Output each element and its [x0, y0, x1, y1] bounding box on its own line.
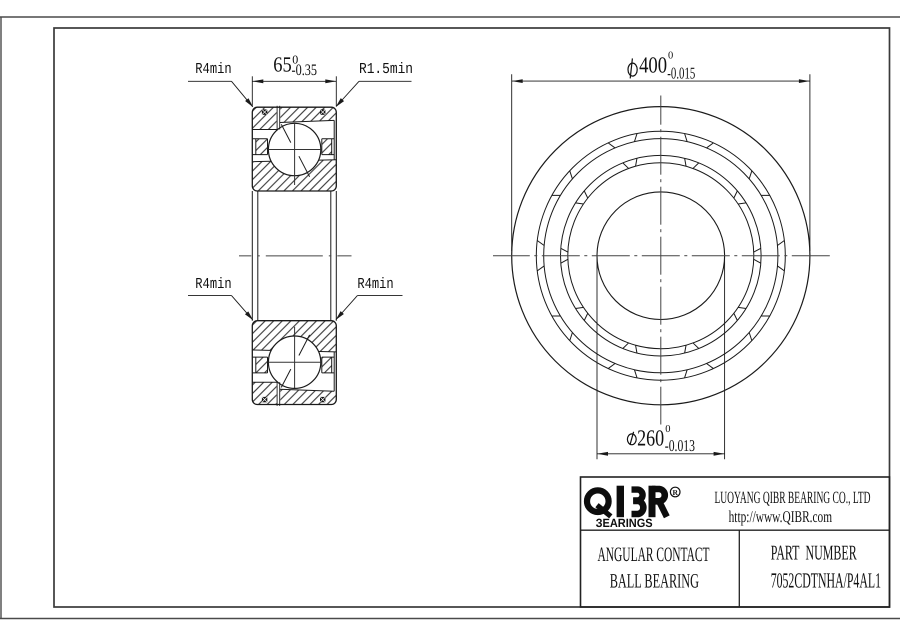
svg-text:R4min: R4min [195, 275, 231, 293]
svg-text:R4min: R4min [195, 60, 231, 78]
svg-text:R1.5min: R1.5min [359, 60, 413, 78]
svg-text:R4min: R4min [357, 275, 393, 293]
svg-text:-0.013: -0.013 [665, 436, 695, 455]
svg-text:BALL BEARING: BALL BEARING [610, 570, 699, 592]
svg-text:ANGULAR CONTACT: ANGULAR CONTACT [598, 544, 710, 566]
svg-text:65: 65 [273, 53, 292, 77]
svg-text:-0.015: -0.015 [667, 64, 695, 83]
svg-text:260: 260 [637, 425, 664, 450]
svg-text:R: R [672, 488, 678, 497]
svg-text:-0.35: -0.35 [292, 62, 318, 79]
svg-text:400: 400 [639, 53, 667, 78]
svg-text:0: 0 [665, 424, 670, 435]
svg-text:LUOYANG QIBR BEARING CO., LTD: LUOYANG QIBR BEARING CO., LTD [715, 488, 871, 507]
svg-text:PART NUMBER: PART NUMBER [771, 540, 857, 564]
svg-text:http://www.QIBR.com: http://www.QIBR.com [729, 507, 833, 526]
svg-text:ЗEARINGS: ЗEARINGS [596, 516, 653, 530]
svg-text:7052CDTNHA/P4AL1: 7052CDTNHA/P4AL1 [771, 569, 881, 593]
svg-text:0: 0 [668, 51, 673, 62]
